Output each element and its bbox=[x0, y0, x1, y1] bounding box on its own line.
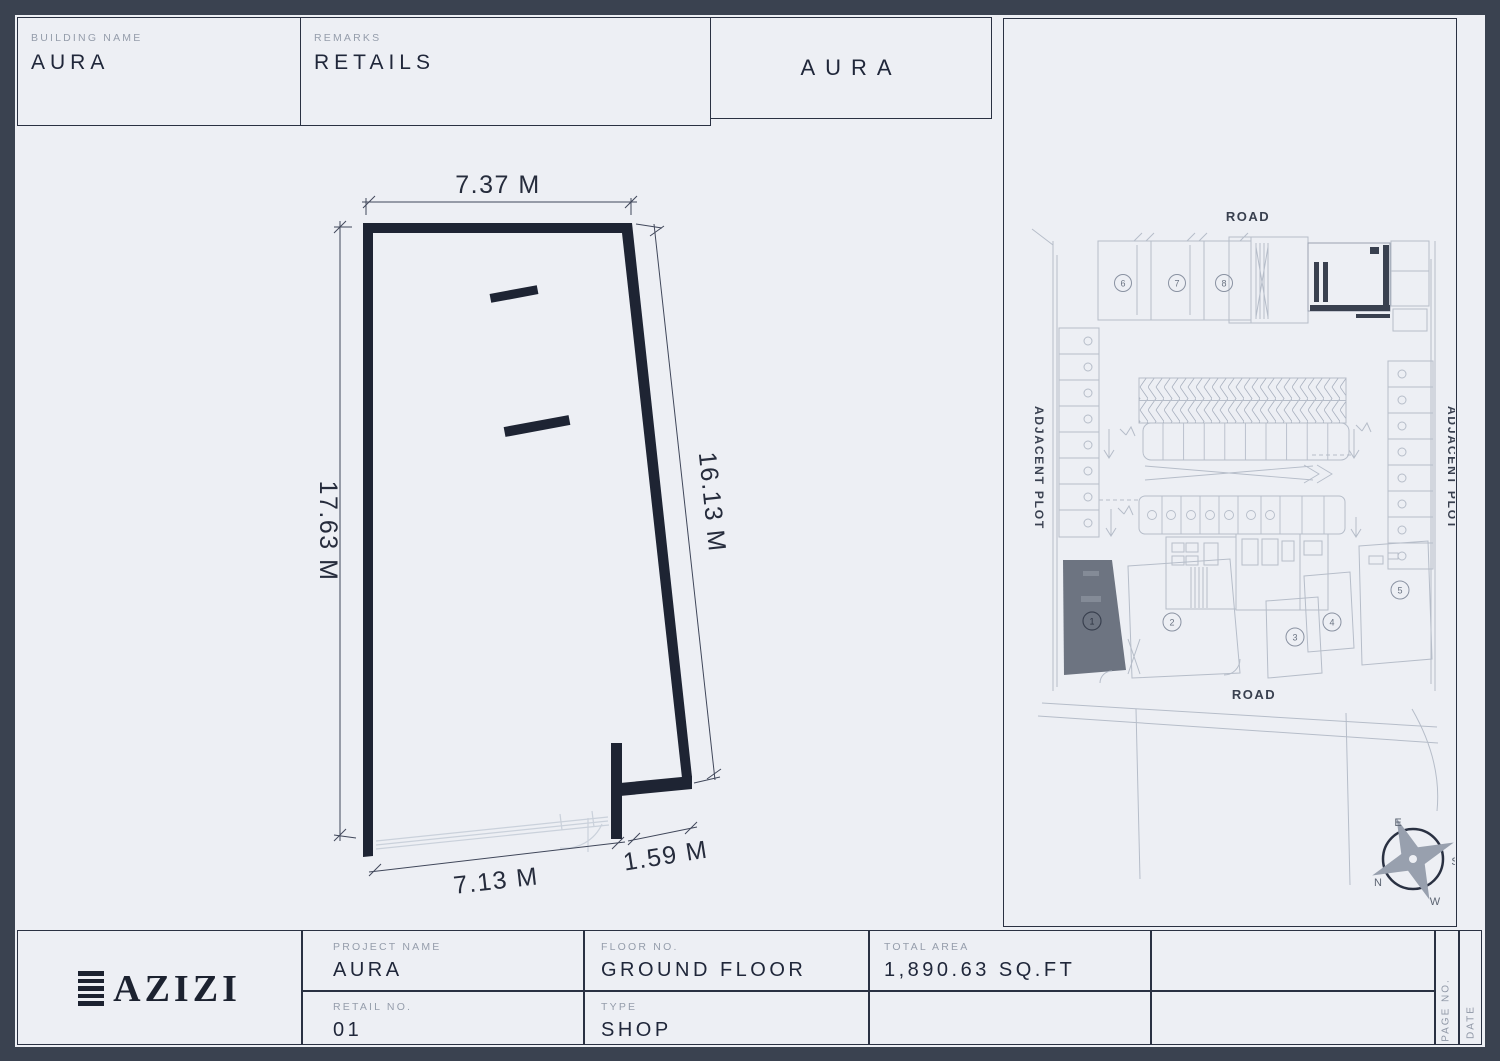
title-block-divider bbox=[868, 931, 870, 1044]
site-bottom-shops: 1 2 3 4 5 6 7 8 bbox=[1063, 275, 1432, 684]
interior-wall-stub-upper bbox=[490, 285, 539, 303]
page-no-label: PAGE NO. bbox=[1441, 979, 1452, 1043]
type-label: TYPE bbox=[601, 1001, 856, 1013]
key-plan-drawing: 1 2 3 4 5 6 7 8 ROAD bbox=[1004, 19, 1455, 925]
retail-no-value: 01 bbox=[333, 1019, 573, 1042]
title-block-divider bbox=[583, 931, 585, 1044]
retail-no-cell: RETAIL NO. 01 bbox=[333, 991, 573, 1046]
adjacent-plot-left-label: ADJACENT PLOT bbox=[1032, 406, 1046, 530]
compass-s: S bbox=[1451, 856, 1455, 868]
azizi-logo: AZIZI bbox=[18, 931, 301, 1046]
floor-no-cell: FLOOR NO. GROUND FLOOR bbox=[601, 931, 856, 991]
drawing-sheet-page: BUILDING NAME AURA REMARKS RETAILS AURA bbox=[0, 0, 1500, 1061]
unit-8-number: 8 bbox=[1221, 279, 1226, 289]
site-right-service-cells bbox=[1388, 361, 1433, 569]
adjacent-plot-right-label: ADJACENT PLOT bbox=[1445, 406, 1455, 530]
dim-bottom-label: 7.13 M bbox=[452, 862, 540, 899]
date-label: DATE bbox=[1465, 1005, 1476, 1039]
compass-n: N bbox=[1374, 877, 1382, 889]
azizi-bars-icon bbox=[78, 971, 104, 1006]
walls bbox=[363, 223, 692, 857]
title-block: AZIZI PROJECT NAME AURA RETAIL NO. 01 FL… bbox=[17, 930, 1482, 1045]
unit-6-number: 6 bbox=[1120, 279, 1125, 289]
date-strip: DATE bbox=[1458, 931, 1483, 1046]
project-name-cell: PROJECT NAME AURA bbox=[333, 931, 573, 991]
unit-2-number: 2 bbox=[1169, 618, 1174, 628]
unit-3-number: 3 bbox=[1292, 633, 1297, 643]
project-name-label: PROJECT NAME bbox=[333, 941, 573, 953]
interior-wall-stub-lower bbox=[504, 415, 571, 437]
total-area-value: 1,890.63 SQ.FT bbox=[884, 959, 1144, 982]
storefront-glazing bbox=[376, 811, 609, 852]
site-stair-block bbox=[1308, 243, 1390, 318]
unit-5-number: 5 bbox=[1397, 586, 1402, 596]
site-left-service-cells bbox=[1059, 328, 1099, 537]
key-plan-panel: 1 2 3 4 5 6 7 8 ROAD bbox=[1003, 18, 1457, 927]
unit-7-number: 7 bbox=[1174, 279, 1179, 289]
compass-rose-icon: E S N W bbox=[1356, 802, 1455, 917]
dim-top-label: 7.37 M bbox=[455, 171, 540, 199]
total-area-label: TOTAL AREA bbox=[884, 941, 1144, 953]
road-top-label: ROAD bbox=[1226, 209, 1270, 224]
compass-w: W bbox=[1430, 896, 1441, 908]
road-bottom-label: ROAD bbox=[1232, 687, 1276, 702]
dim-left-label: 17.63 M bbox=[314, 481, 342, 582]
retail-no-label: RETAIL NO. bbox=[333, 1001, 573, 1013]
title-block-divider bbox=[301, 931, 303, 1044]
compass-e: E bbox=[1394, 817, 1401, 829]
site-parking bbox=[1099, 378, 1371, 537]
unit-4-number: 4 bbox=[1329, 618, 1334, 628]
dim-bottom-right-label: 1.59 M bbox=[621, 836, 710, 877]
project-name-value: AURA bbox=[333, 959, 573, 982]
floor-no-value: GROUND FLOOR bbox=[601, 959, 856, 982]
title-block-divider bbox=[1150, 931, 1152, 1044]
dim-right-label: 16.13 M bbox=[693, 451, 731, 554]
unit-1-number: 1 bbox=[1089, 617, 1094, 627]
site-arrows bbox=[1104, 423, 1371, 537]
type-value: SHOP bbox=[601, 1019, 856, 1042]
floor-no-label: FLOOR NO. bbox=[601, 941, 856, 953]
total-area-cell: TOTAL AREA 1,890.63 SQ.FT bbox=[884, 931, 1144, 991]
page-no-strip: PAGE NO. bbox=[1434, 931, 1458, 1046]
site-outline bbox=[1032, 229, 1438, 885]
type-cell: TYPE SHOP bbox=[601, 991, 856, 1046]
azizi-logo-text: AZIZI bbox=[113, 967, 241, 1011]
